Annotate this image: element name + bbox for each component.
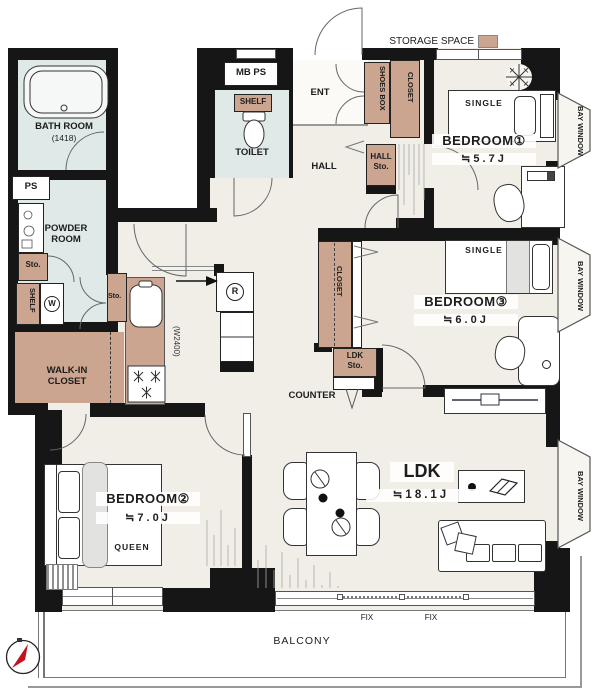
toilet-door-arc	[234, 178, 272, 216]
bay-window-label: BAY WINDOW	[561, 252, 585, 320]
ldk-door-arc	[365, 195, 398, 228]
ldk-label: LDK	[390, 462, 454, 482]
bedroom1-bed-label: SINGLE	[458, 99, 510, 108]
bay-window-label: BAY WINDOW	[561, 102, 585, 160]
counter-label: COUNTER	[284, 391, 340, 401]
powder-door-arc	[80, 303, 106, 329]
bay-window-label: BAY WINDOW	[561, 460, 585, 532]
bedroom2-label: BEDROOM②	[96, 492, 200, 506]
table-bowl	[319, 494, 328, 503]
bathroom-size: (1418)	[22, 134, 106, 143]
table-bowl	[336, 509, 345, 518]
entrance-door-arc	[315, 8, 362, 55]
closet-chevron	[354, 246, 378, 258]
ldk-size: ≒18.1J	[366, 489, 476, 502]
legend-storage-swatch	[478, 35, 498, 48]
fix-label-right: FIX	[418, 614, 444, 623]
bedroom3-size: ≒6.0J	[414, 314, 518, 326]
wic-door-arc	[50, 414, 86, 450]
fix-label-left: FIX	[354, 614, 380, 623]
hall-sto-chevron	[346, 141, 364, 153]
closet-chevron	[354, 316, 378, 328]
powder-storage-door-arc	[48, 256, 74, 282]
compass-icon	[7, 638, 40, 674]
bedroom3-door-arc	[382, 345, 425, 388]
powder-room-label1: POWDER	[30, 224, 102, 234]
ceiling-light-icon	[506, 64, 532, 90]
kitchen-faucet	[139, 281, 152, 287]
floor-plan: PS MB PS SHELF SHOES BOX CLOSET HALL Sto…	[0, 0, 600, 698]
toilet-label: TOILET	[216, 148, 288, 158]
place-setting	[311, 470, 350, 536]
entrance-label: ENT	[295, 88, 345, 98]
book-icon	[490, 479, 517, 495]
shoes-box-door-arc	[336, 96, 364, 124]
entry-arrow-icon	[176, 276, 218, 286]
bathroom-label: BATH ROOM	[22, 122, 106, 132]
counter-pointer	[346, 389, 358, 408]
powder-door-arc	[80, 277, 106, 303]
toilet-bowl	[244, 120, 264, 148]
hall-label: HALL	[303, 162, 345, 172]
hatch-lines	[207, 144, 424, 588]
kitchen-sink	[130, 285, 162, 327]
bedroom1-size: ≒5.7J	[432, 153, 536, 165]
bedroom2-bed-label: QUEEN	[104, 543, 160, 552]
bedroom2-size: ≒7.0J	[96, 512, 200, 524]
bedroom3-bed-label: SINGLE	[458, 246, 510, 255]
plan-linework	[0, 0, 600, 698]
bedroom3-label: BEDROOM③	[414, 295, 518, 309]
kitchen-door-arc	[134, 224, 186, 276]
tv-center	[481, 394, 499, 405]
balcony-label: BALCONY	[264, 636, 340, 648]
powder-room-label2: ROOM	[30, 235, 102, 245]
legend-storage-label: STORAGE SPACE	[368, 36, 474, 47]
bedroom1-label: BEDROOM①	[432, 134, 536, 148]
bedroom2-door-arc	[205, 415, 245, 455]
